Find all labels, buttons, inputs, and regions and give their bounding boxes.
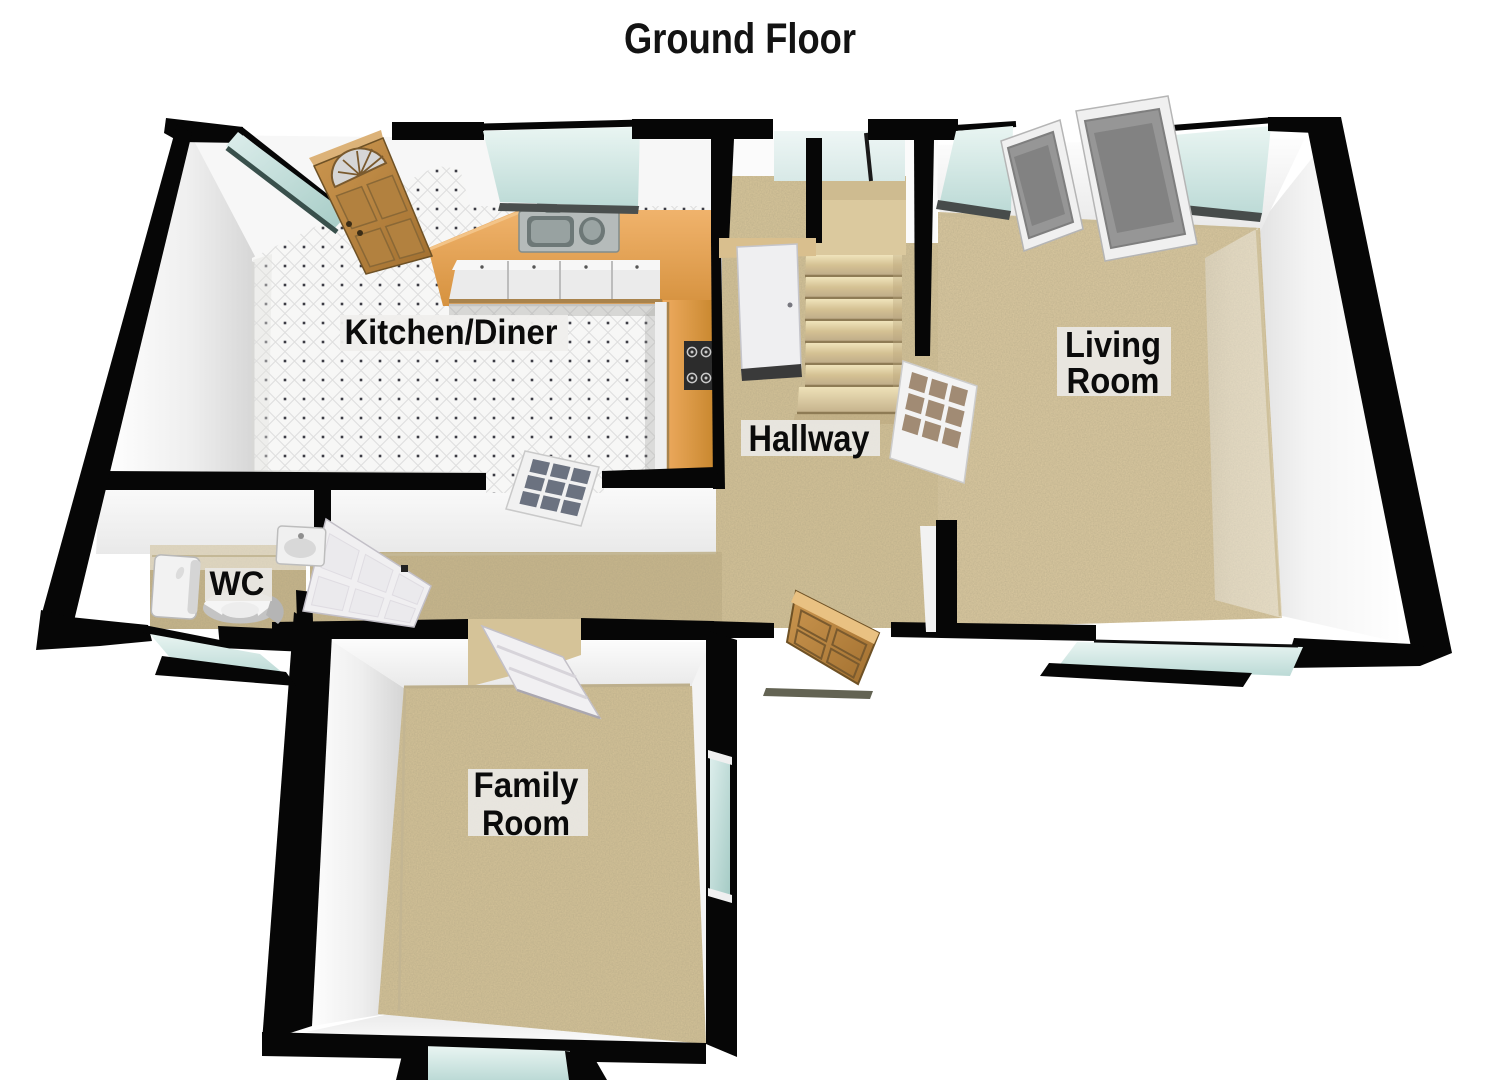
svg-text:Family: Family [474,766,579,805]
svg-text:Room: Room [1067,360,1160,401]
svg-text:Ground Floor: Ground Floor [624,15,856,63]
svg-text:Hallway: Hallway [749,418,870,459]
svg-text:WC: WC [210,565,265,603]
svg-text:Kitchen/Diner: Kitchen/Diner [345,313,558,352]
svg-text:Room: Room [482,804,570,843]
svg-text:Living: Living [1065,324,1161,365]
